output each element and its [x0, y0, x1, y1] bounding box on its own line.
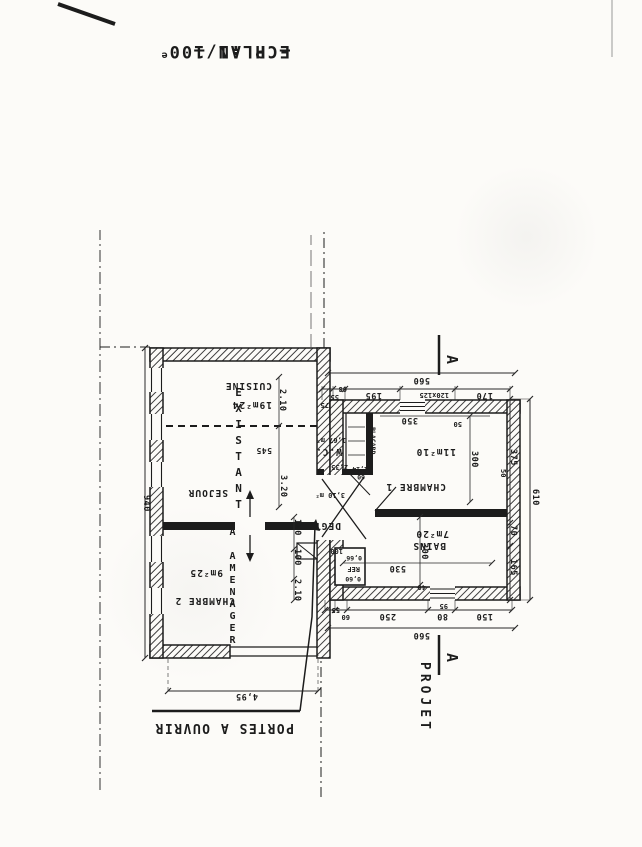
- section-marker-a-top: A: [443, 355, 461, 365]
- dim-top-seg3: 250: [379, 611, 396, 621]
- sejour-label: SEJOUR: [188, 487, 228, 498]
- dim-left-95: 95: [498, 509, 506, 517]
- dim-50b: 50: [499, 469, 507, 477]
- dim-495: 4,95: [236, 691, 258, 701]
- chambre1-area: 11m²10: [416, 446, 456, 457]
- plan-title: — PLAN —: [192, 41, 290, 61]
- dim-placard-60: 60: [357, 473, 365, 481]
- chambre2-area: 9m²25: [189, 567, 223, 578]
- dim-545: 545: [256, 446, 272, 455]
- dim-left-total: 610: [530, 489, 540, 506]
- dim-left-seg2: 70: [508, 525, 518, 536]
- dim-left-seg1: 165: [508, 559, 518, 576]
- plan-drawing: — PLAN — ECH :1/100e PORTES A OUVRIR PRO…: [0, 0, 642, 847]
- dim-chambre2-210: 2.10: [292, 579, 302, 601]
- wc-label: W.C.: [315, 446, 342, 457]
- dim-ref-100: 100: [330, 547, 343, 555]
- placard-label: PLACARD: [369, 427, 377, 454]
- dim-top-seg5: 55: [332, 606, 340, 614]
- dim-50a: 50: [454, 420, 462, 428]
- a-amenager-label: A AMENAGER: [227, 527, 238, 647]
- dim-top-seg1: 150: [476, 611, 493, 621]
- scanned-plan-sheet: — PLAN — ECH :1/100e PORTES A OUVRIR PRO…: [0, 0, 642, 847]
- dim-sejour-320: 3.20: [278, 475, 288, 497]
- bains-area: 7m²20: [415, 528, 449, 539]
- ref-dim-top: 0,60: [345, 575, 361, 583]
- dim-top-seg4: 60: [342, 613, 350, 621]
- dim-bains-300: 300: [419, 543, 429, 560]
- cuisine-label: CUISINE: [225, 380, 272, 391]
- dim-top-95: 95: [440, 602, 448, 610]
- section-marker-a-bottom: A: [443, 653, 461, 663]
- ref-label: REF: [347, 565, 360, 573]
- plan-linework: [0, 0, 642, 847]
- dim-940: 940: [141, 495, 151, 512]
- dim-total-top: 560: [413, 630, 430, 640]
- degt-label: DEGT: [314, 520, 341, 531]
- wc-area: 1,67 m²: [316, 436, 346, 444]
- dim-bottom-seg5: 55: [331, 393, 339, 401]
- dim-40: 40: [418, 583, 426, 591]
- dim-bottom-seg3: 195: [365, 390, 382, 400]
- projet-label: PROJET: [417, 662, 432, 733]
- dim-left-seg3: 375: [508, 449, 518, 466]
- degt-area: 3,10 m²: [315, 491, 345, 499]
- dim-bottom-seg4: 68: [339, 385, 347, 393]
- dim-bottom-seg2: 120x125: [419, 391, 449, 399]
- chambre2-label: CHAMBRE 2: [175, 595, 235, 606]
- dim-door-100a: 100: [292, 549, 302, 566]
- extension-walls: [297, 399, 520, 601]
- dim-wc-235: 2,35: [331, 463, 348, 471]
- dim-chambre1-350: 350: [401, 415, 418, 425]
- ref-dim-bottom: 0,66: [346, 554, 362, 562]
- title-block: — PLAN — ECH :1/100e: [160, 41, 290, 61]
- chambre1-label: CHAMBRE 1: [386, 481, 446, 492]
- dim-placard-114: 1,14: [352, 465, 368, 473]
- dim-top-seg2: 80: [437, 611, 448, 621]
- dim-chambre1-300: 300: [469, 451, 479, 468]
- cuisine-area: 19m²24: [232, 399, 272, 410]
- dim-bottom-75: 75: [321, 401, 329, 409]
- dim-bottom-seg1: 170: [476, 390, 493, 400]
- dim-total-bottom: 560: [413, 375, 430, 385]
- dim-door-100b: 100: [292, 519, 302, 536]
- bains-label: BAINS: [412, 540, 446, 551]
- dim-bains-530: 530: [389, 563, 406, 573]
- scale-superscript: e: [160, 50, 168, 61]
- portes-a-ouvrir-note: PORTES A OUVRIR: [154, 720, 294, 735]
- dim-cuisine-210: 2.10: [277, 389, 287, 411]
